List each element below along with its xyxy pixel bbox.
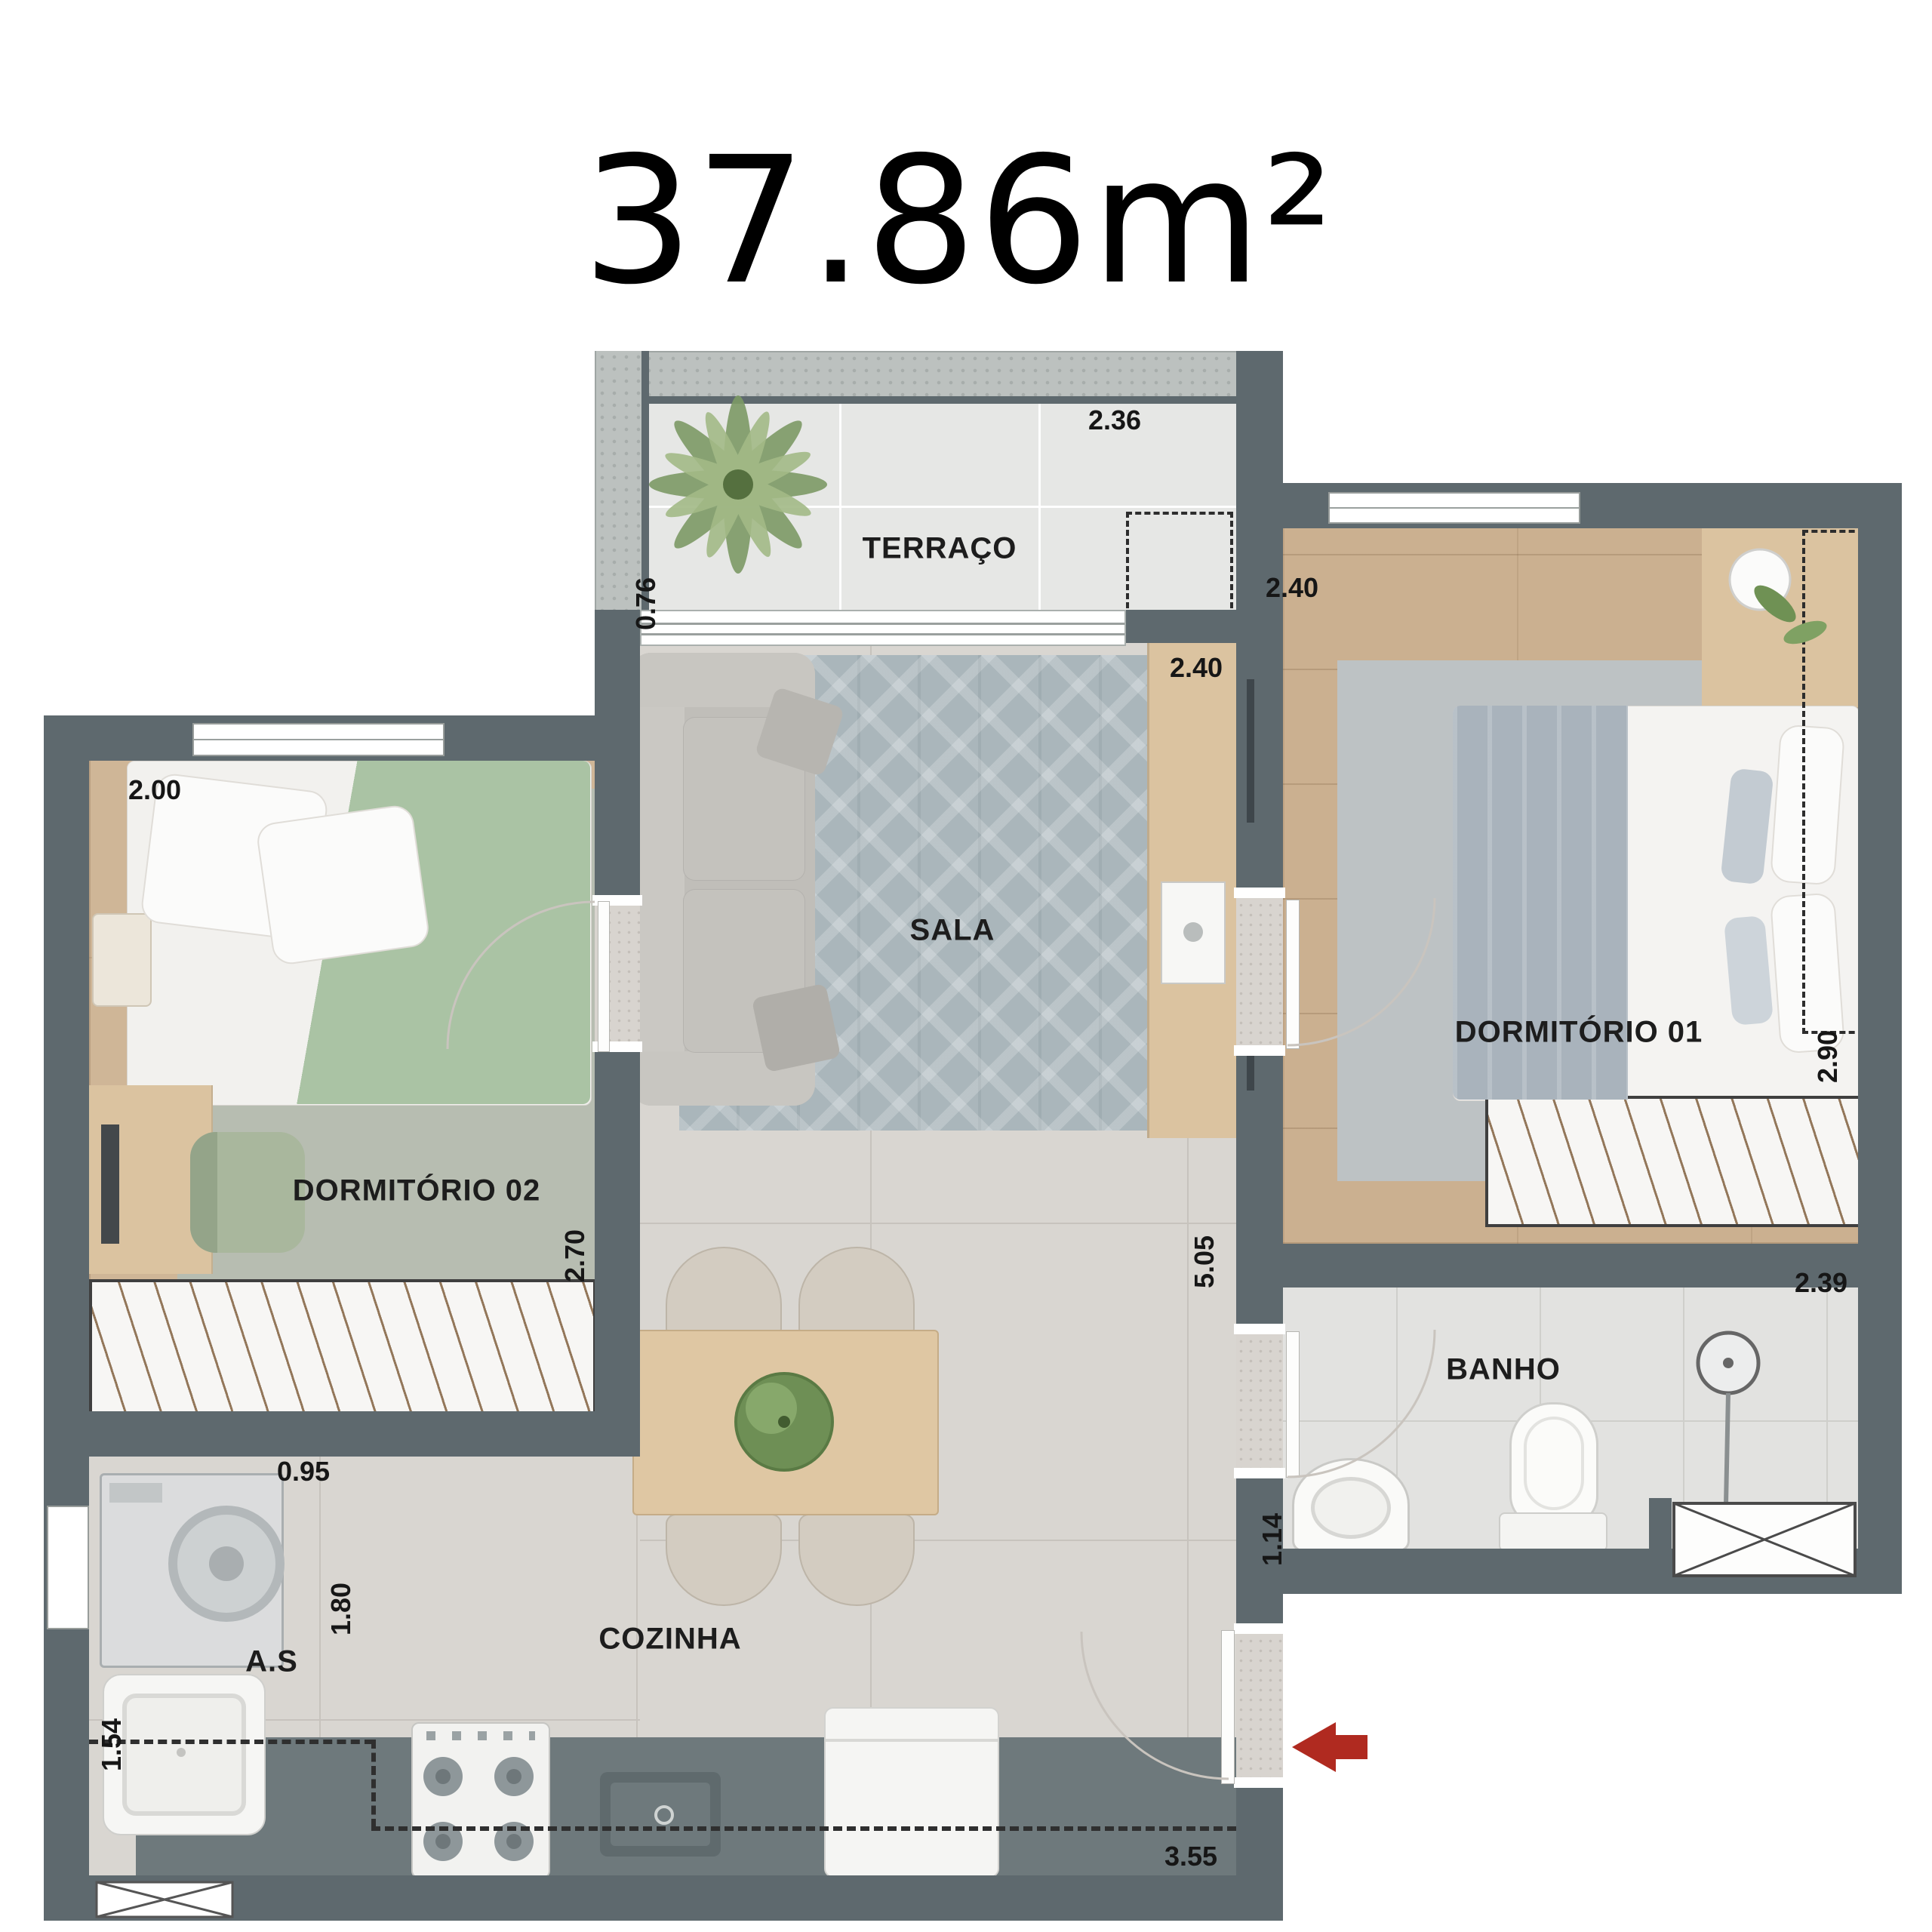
service-window — [47, 1506, 89, 1629]
bedroom1-window — [1328, 492, 1580, 524]
floor-plan: 37.86m² — [0, 0, 1932, 1932]
dim-area-servico-width: 0.95 — [277, 1456, 330, 1487]
sliding-door — [640, 610, 1126, 646]
dim-cozinha-depth: 1.80 — [325, 1583, 357, 1635]
dim-cozinha-width: 3.55 — [1164, 1841, 1217, 1872]
washer-drum — [168, 1506, 285, 1622]
service-top-wall — [44, 1411, 640, 1457]
bedroom1-closet — [1485, 1096, 1869, 1227]
bedroom2-closet — [89, 1279, 596, 1419]
bathroom-door-leaf — [1286, 1331, 1300, 1478]
left-wall — [44, 715, 89, 1921]
entry-door-leaf — [1221, 1630, 1235, 1784]
bedroom1-door-leaf — [1286, 900, 1300, 1049]
bedroom1-door-opening — [1236, 891, 1283, 1053]
right-wall — [1858, 483, 1902, 1594]
stove-knobs — [426, 1731, 535, 1740]
room-label-dormitorio1: DORMITÓRIO 01 — [1455, 1016, 1703, 1050]
cabinet-projection-dashed — [371, 1826, 1236, 1831]
dim-sala-width: 2.40 — [1170, 652, 1223, 684]
bedroom2-window — [192, 723, 445, 756]
wall-niche — [1247, 679, 1254, 823]
room-label-sala: SALA — [910, 914, 995, 948]
cabinet-projection-dashed — [371, 1740, 376, 1828]
faucet — [654, 1805, 674, 1825]
toilet-icon — [1509, 1402, 1598, 1526]
dim-banho-depth: 1.14 — [1257, 1513, 1288, 1566]
bath-bottom-wall — [1236, 1549, 1902, 1594]
monitor — [101, 1124, 119, 1244]
dim-dormitorio2-depth: 2.70 — [559, 1229, 591, 1282]
entry-door-opening — [1236, 1626, 1283, 1785]
desk-chair — [190, 1132, 305, 1253]
bedroom2-door-leaf — [598, 901, 610, 1052]
room-label-terraco: TERRAÇO — [863, 532, 1017, 566]
coffee-maker — [1161, 881, 1226, 984]
ac-projection-dashed — [1126, 512, 1233, 617]
wall — [1236, 351, 1283, 891]
dim-dormitorio1-depth: 2.90 — [1812, 1030, 1844, 1083]
dim-dormitorio2-width: 2.00 — [128, 774, 181, 806]
room-label-cozinha: COZINHA — [598, 1623, 741, 1657]
terrace-left-wall — [595, 351, 649, 610]
toilet-tank — [1499, 1512, 1607, 1552]
stove-icon — [411, 1722, 550, 1878]
washer-panel — [109, 1483, 162, 1503]
wardrobe-projection-dashed — [1802, 530, 1864, 1034]
dim-banho-width: 2.39 — [1795, 1267, 1847, 1299]
kitchen-sink-icon — [600, 1772, 721, 1857]
dim-terraco-depth: 0.76 — [630, 577, 662, 630]
dim-terraco-width: 2.36 — [1088, 405, 1141, 436]
entrance-arrow-icon — [1292, 1722, 1375, 1772]
throw-pillow — [752, 983, 841, 1073]
washing-machine-icon — [100, 1473, 284, 1668]
terrace-door-stub — [1123, 610, 1236, 643]
cabinet-projection-dashed — [89, 1740, 374, 1744]
fridge-handle — [826, 1739, 998, 1742]
appliance-dial — [1183, 922, 1203, 942]
bedroom1-bath-wall — [1283, 1244, 1858, 1287]
dim-area-servico-depth: 1.54 — [96, 1718, 128, 1771]
bed-pillow — [255, 803, 431, 966]
dim-circulacao-length: 5.05 — [1189, 1235, 1220, 1288]
bathroom-sink-icon — [1292, 1458, 1410, 1552]
page-title: 37.86m² — [582, 119, 1334, 323]
bedroom2-right-wall — [595, 761, 640, 898]
wall — [1236, 1053, 1283, 1327]
room-label-dormitorio2: DORMITÓRIO 02 — [293, 1174, 541, 1208]
bottom-wall — [44, 1875, 1283, 1921]
dining-table — [632, 1330, 939, 1515]
dim-dormitorio1-width: 2.40 — [1266, 572, 1318, 604]
bedroom2-right-wall — [595, 1049, 640, 1411]
room-label-banho: BANHO — [1446, 1353, 1561, 1387]
terrace-top-wall — [595, 351, 1283, 404]
bathroom-door-opening — [1236, 1327, 1283, 1475]
fridge — [824, 1707, 999, 1878]
room-label-area-servico: A.S — [245, 1645, 298, 1679]
